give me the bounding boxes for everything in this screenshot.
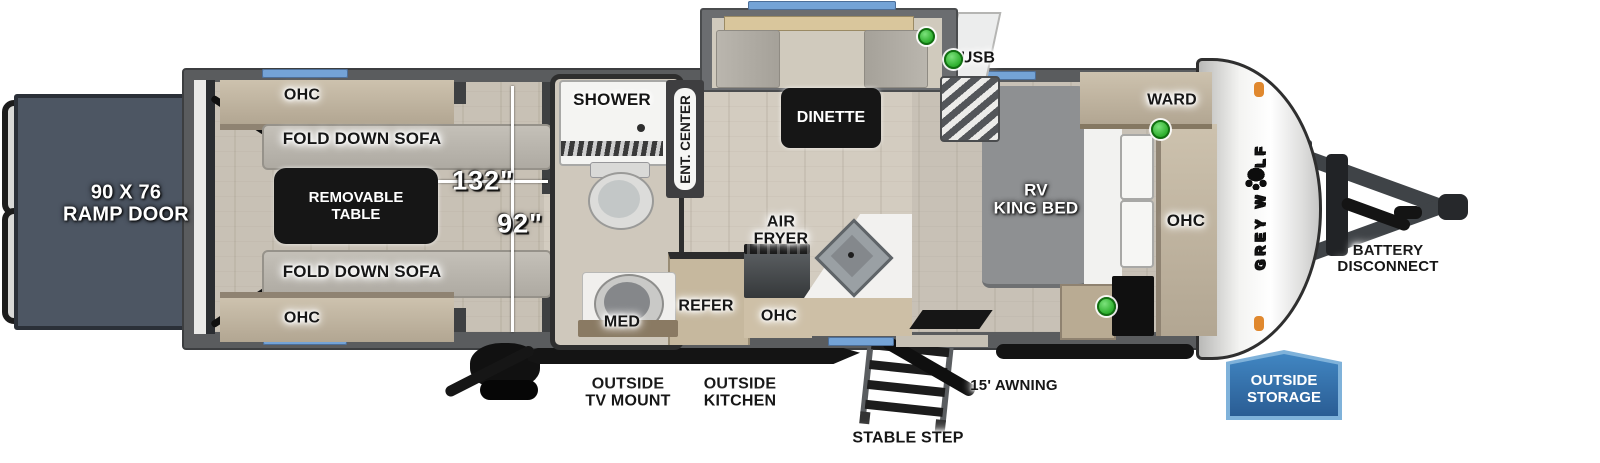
awning-label: 15' AWNING (970, 378, 1058, 394)
kitchen-counter-base (810, 298, 912, 336)
sofa-top-label: FOLD DOWN SOFA (283, 130, 442, 148)
garage-door-frame-white (194, 80, 206, 334)
step-rung (865, 400, 944, 417)
kitchen-sink-drain (848, 252, 854, 258)
pillow (1120, 134, 1154, 200)
awning-rail-right (996, 344, 1194, 359)
outside-tv-mount-label: OUTSIDE TV MOUNT (585, 376, 670, 411)
marker-light (1254, 316, 1264, 331)
partition-stub (452, 82, 466, 104)
step-foot (859, 411, 870, 424)
toilet-bowl-inner (598, 180, 640, 218)
stable-step-label: STABLE STEP (852, 429, 963, 446)
shower-label: SHOWER (573, 91, 651, 109)
ohc-top-label: OHC (284, 86, 320, 103)
usb-indicator-icon (918, 28, 935, 45)
kitchen-ohc-label: OHC (761, 307, 797, 324)
overhead-cabinet-bottom (220, 292, 454, 342)
bedroom-tv (1112, 276, 1154, 336)
dimension-92-label: 92" (497, 209, 543, 238)
usb-indicator-icon (1151, 120, 1170, 139)
entry-door-panel (909, 310, 992, 329)
sofa-bottom-label: FOLD DOWN SOFA (283, 263, 442, 281)
paw-icon (1245, 168, 1267, 190)
partition-stub (452, 308, 466, 332)
garage-door-frame-dark (206, 80, 215, 334)
refer-label: REFER (678, 297, 733, 314)
step-rung (867, 380, 946, 397)
usb-indicator-icon (1097, 297, 1116, 316)
interior-steps (940, 76, 1000, 142)
window-strip (262, 69, 348, 78)
dinette-table (724, 16, 914, 31)
removable-table: REMOVABLE TABLE (274, 168, 438, 244)
shower-drain (637, 124, 645, 132)
outside-kitchen-label: OUTSIDE KITCHEN (704, 376, 777, 411)
outside-storage-badge: OUTSIDE STORAGE (1230, 354, 1338, 416)
pillow (1120, 200, 1154, 268)
marker-light (1254, 82, 1264, 97)
bedroom-ohc-label: OHC (1167, 212, 1205, 230)
bed-label: RV KING BED (994, 182, 1079, 219)
window-strip (828, 337, 894, 346)
med-label: MED (604, 313, 640, 330)
window-strip (748, 1, 896, 10)
dinette-label-box: DINETTE (781, 88, 881, 148)
outside-tv-mount-foot (480, 380, 538, 400)
dimension-132-label: 132" (452, 166, 514, 195)
hitch-coupler (1438, 194, 1468, 220)
battery-disconnect-label: BATTERY DISCONNECT (1337, 243, 1438, 275)
battery-disconnect-handle (1394, 206, 1422, 219)
entry-door-opening (896, 335, 988, 347)
range-air-fryer (744, 252, 810, 298)
usb-legend-label: USB (961, 49, 995, 66)
ward-label: WARD (1147, 91, 1197, 108)
awning-rail-left (528, 348, 860, 364)
usb-legend-icon (944, 50, 963, 69)
dinette-bench-left (716, 30, 780, 88)
floorplan-canvas: 90 X 76 RAMP DOOR OHC FOLD DOWN SOFA REM… (0, 0, 1600, 463)
ohc-bottom-label: OHC (284, 309, 320, 326)
air-fryer-label: AIR FRYER (754, 214, 809, 249)
overhead-cabinet-top (220, 80, 454, 130)
shower-door (561, 141, 663, 156)
ramp-door-label: 90 X 76 RAMP DOOR (63, 182, 189, 225)
ent-center-label: ENT. CENTER (674, 88, 696, 190)
